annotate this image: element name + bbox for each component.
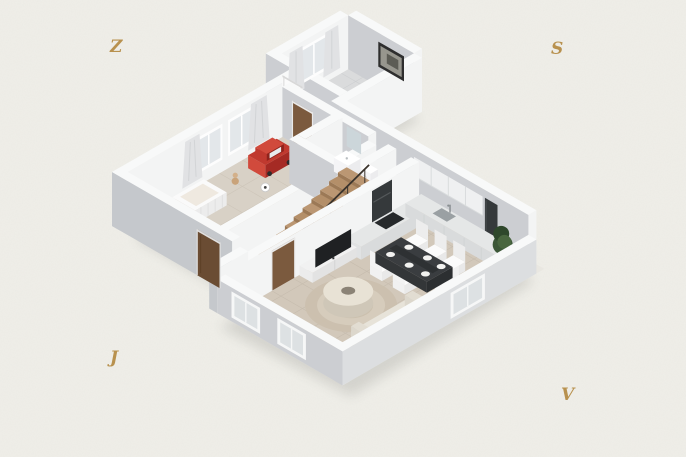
compass-east-label: V	[561, 387, 574, 404]
floor-plan-render: Z S J V	[0, 0, 686, 457]
coffee-table	[323, 277, 373, 318]
floorplan-svg	[0, 0, 686, 457]
compass-west-label: Z	[110, 39, 122, 56]
soccer-ball	[261, 183, 270, 192]
compass-north-label: S	[551, 41, 563, 58]
compass-south-label: J	[110, 350, 118, 367]
